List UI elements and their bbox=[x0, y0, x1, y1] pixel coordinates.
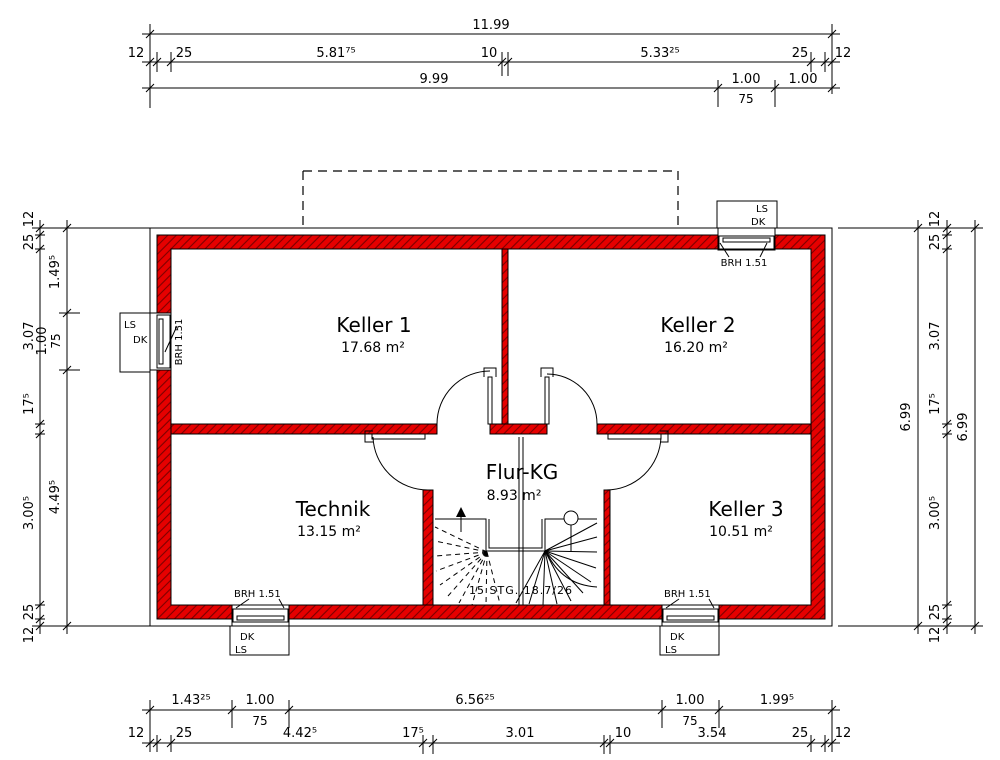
room-area-technik: 13.15 m² bbox=[297, 524, 361, 540]
floor-plan-svg: LS DK BRH 1.51 LS DK BRH 1.51 DK LS BRH … bbox=[0, 0, 1000, 760]
dim-top-chain-1: 25 bbox=[176, 46, 193, 61]
stairwell-edge-inner bbox=[489, 519, 542, 548]
window-left: LS DK BRH 1.51 bbox=[120, 313, 185, 372]
door-keller1 bbox=[437, 368, 496, 424]
room-area-keller2: 16.20 m² bbox=[664, 340, 728, 356]
dim-top-sub75: 75 bbox=[738, 92, 753, 106]
dim-left-inner-1: 1.00 bbox=[35, 327, 50, 356]
dim-bottom-upper75-0: 75 bbox=[252, 714, 267, 728]
dim-right-chain-2: 3.07 bbox=[928, 322, 943, 351]
dim-left-chain-5: 25 bbox=[22, 604, 37, 621]
dim-top-chain-0: 12 bbox=[128, 46, 145, 61]
dim-left-chain-6: 12 bbox=[22, 627, 37, 644]
room-name-flur: Flur-KG bbox=[486, 460, 559, 484]
room-area-flur: 8.93 m² bbox=[487, 488, 542, 504]
dim-bottom-lower-1: 25 bbox=[176, 726, 193, 741]
dim-top-extensions bbox=[150, 24, 832, 108]
dim-right-chain-6: 12 bbox=[928, 627, 943, 644]
door-jamb bbox=[484, 368, 496, 377]
light-shaft-dk-label: DK bbox=[133, 335, 148, 346]
dim-right-chain-3: 17⁵ bbox=[928, 393, 943, 415]
dim-right-chain-4: 3.00⁵ bbox=[928, 496, 943, 530]
room-area-keller3: 10.51 m² bbox=[709, 524, 773, 540]
dim-left-chain-3: 17⁵ bbox=[22, 393, 37, 415]
dim-top-chain-4: 5.33²⁵ bbox=[640, 46, 679, 61]
room-name-keller1: Keller 1 bbox=[336, 313, 411, 337]
door-leaf bbox=[372, 434, 425, 439]
dimensions-left: 12 25 3.07 17⁵ 3.00⁵ 25 12 1.49⁵ 1.00 75… bbox=[22, 211, 150, 644]
dimensions-right: 6.99 12 25 3.07 17⁵ 3.00⁵ 25 12 6.99 bbox=[838, 211, 983, 644]
light-shaft-ls-label: LS bbox=[665, 645, 677, 656]
dim-bottom-lower-8: 12 bbox=[835, 726, 852, 741]
dim-right-chain-5: 25 bbox=[928, 604, 943, 621]
dim-bottom-lower-0: 12 bbox=[128, 726, 145, 741]
partition-flur-keller3 bbox=[604, 490, 610, 605]
dim-bottom-lower-7: 25 bbox=[792, 726, 809, 741]
dim-right-total-outer: 6.99 bbox=[956, 413, 971, 442]
door-swing-arc bbox=[373, 437, 428, 490]
door-jamb bbox=[541, 368, 553, 377]
dashed-projection-outline bbox=[303, 171, 678, 228]
dim-right-total-inner: 6.99 bbox=[899, 403, 914, 432]
door-keller2 bbox=[541, 368, 597, 424]
walk-line-start-circle bbox=[564, 511, 578, 525]
dim-bottom-lower-6: 3.54 bbox=[698, 726, 727, 741]
brh-label: BRH 1.51 bbox=[721, 258, 768, 269]
dim-top-sub-0: 9.99 bbox=[420, 72, 449, 87]
dim-bottom-lower-2: 4.42⁵ bbox=[283, 726, 317, 741]
brh-label: BRH 1.51 bbox=[174, 319, 185, 366]
dim-left-inner75: 75 bbox=[49, 333, 63, 348]
dim-left-chain-1: 25 bbox=[22, 234, 37, 251]
dim-top-chain-6: 12 bbox=[835, 46, 852, 61]
door-swing-arc bbox=[437, 371, 490, 424]
dim-right-chain-1: 25 bbox=[928, 234, 943, 251]
dim-top-chain-3: 10 bbox=[481, 46, 498, 61]
door-leaf bbox=[545, 377, 549, 424]
dim-bottom-upper-3: 1.00 bbox=[676, 693, 705, 708]
dim-bottom-lower-5: 10 bbox=[615, 726, 632, 741]
window-opening bbox=[150, 313, 171, 370]
door-leaf bbox=[608, 434, 661, 439]
dim-left-inner-2: 4.49⁵ bbox=[48, 480, 63, 514]
middle-wall-left bbox=[171, 424, 437, 434]
brh-label: BRH 1.51 bbox=[234, 589, 281, 600]
partition-keller1-keller2 bbox=[502, 249, 508, 424]
dim-bottom-lower-4: 3.01 bbox=[506, 726, 535, 741]
dim-bottom-upper-4: 1.99⁵ bbox=[760, 693, 794, 708]
room-name-technik: Technik bbox=[295, 497, 371, 521]
door-leaf bbox=[488, 377, 492, 424]
dim-bottom-upper75-1: 75 bbox=[682, 714, 697, 728]
light-shaft-ls-label: LS bbox=[124, 320, 136, 331]
dimensions-bottom: 1.43²⁵ 1.00 6.56²⁵ 1.00 1.99⁵ 75 75 12 2… bbox=[128, 693, 852, 754]
dim-right-chain-0: 12 bbox=[928, 211, 943, 228]
dim-bottom-lower-3: 17⁵ bbox=[402, 726, 424, 741]
dim-top-chain-5: 25 bbox=[792, 46, 809, 61]
light-shaft-dk-label: DK bbox=[240, 632, 255, 643]
interior-walls bbox=[171, 249, 811, 605]
room-name-keller2: Keller 2 bbox=[660, 313, 735, 337]
light-shaft-box bbox=[717, 201, 777, 228]
door-keller3 bbox=[606, 431, 668, 490]
dim-left-chain-4: 3.00⁵ bbox=[22, 496, 37, 530]
window-top: LS DK BRH 1.51 bbox=[717, 201, 777, 269]
brh-label: BRH 1.51 bbox=[664, 589, 711, 600]
dim-top-total: 11.99 bbox=[472, 18, 509, 33]
floor-plan-page: LS DK BRH 1.51 LS DK BRH 1.51 DK LS BRH … bbox=[0, 0, 1000, 760]
light-shaft-dk-label: DK bbox=[670, 632, 685, 643]
room-name-keller3: Keller 3 bbox=[708, 497, 783, 521]
window-bottom-left: DK LS BRH 1.51 bbox=[230, 589, 289, 656]
light-shaft-dk-label: DK bbox=[751, 217, 766, 228]
window-bottom-right: DK LS BRH 1.51 bbox=[660, 589, 719, 656]
dim-bottom-upper-0: 1.43²⁵ bbox=[171, 693, 210, 708]
dim-top-sub-2: 1.00 bbox=[789, 72, 818, 87]
dim-bottom-upper-1: 1.00 bbox=[246, 693, 275, 708]
dim-top-chain-2: 5.81⁷⁵ bbox=[316, 46, 355, 61]
room-area-keller1: 17.68 m² bbox=[341, 340, 405, 356]
window-opening bbox=[718, 228, 775, 250]
dim-top-sub-1: 1.00 bbox=[732, 72, 761, 87]
middle-wall-center bbox=[490, 424, 547, 434]
stair-label: 15 STG. 18.7/26 bbox=[469, 584, 573, 597]
dim-bottom-upper-2: 6.56²⁵ bbox=[455, 693, 494, 708]
door-swing-arc bbox=[606, 437, 661, 490]
dimensions-top: 11.99 12 25 5.81⁷⁵ 10 5.33²⁵ 25 12 9.99 … bbox=[128, 18, 852, 108]
door-swing-arc bbox=[547, 374, 597, 424]
light-shaft-ls-label: LS bbox=[756, 204, 768, 215]
door-technik bbox=[365, 431, 428, 490]
partition-technik-flur bbox=[423, 490, 433, 605]
dim-left-inner-0: 1.49⁵ bbox=[48, 255, 63, 289]
light-shaft-ls-label: LS bbox=[235, 645, 247, 656]
dim-left-chain-0: 12 bbox=[22, 211, 37, 228]
middle-wall-right bbox=[597, 424, 811, 434]
